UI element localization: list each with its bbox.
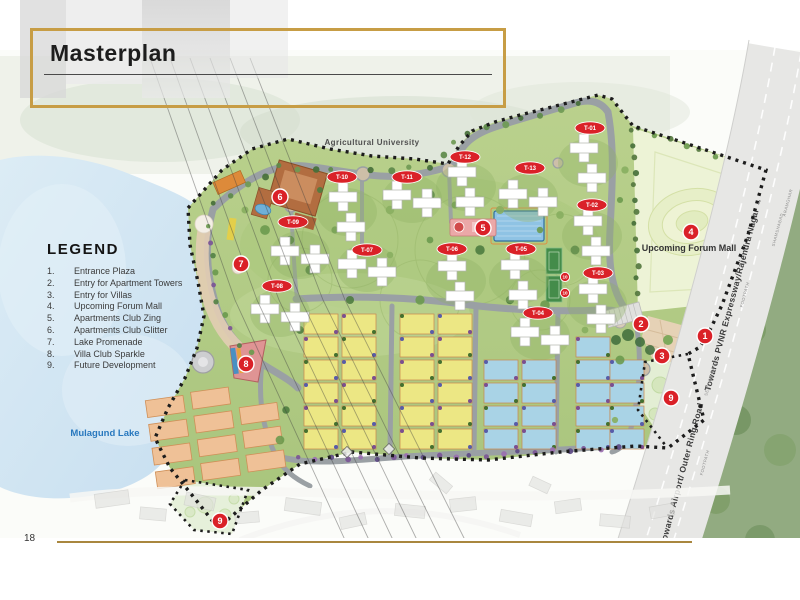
legend-item-label: Entry for Apartment Towers bbox=[74, 278, 182, 290]
tower-label-T-09: T-09 bbox=[278, 216, 308, 228]
svg-text:10: 10 bbox=[562, 291, 568, 296]
mulagund-lake-label: Mulagund Lake bbox=[70, 428, 139, 439]
svg-text:T-11: T-11 bbox=[401, 175, 413, 181]
map-marker-6: 6 bbox=[272, 189, 288, 205]
legend-item: 5.Apartments Club Zing bbox=[47, 313, 182, 325]
tower-label-T-08: T-08 bbox=[262, 280, 292, 292]
legend-item-label: Entrance Plaza bbox=[74, 266, 135, 278]
svg-text:T-08: T-08 bbox=[271, 284, 284, 290]
svg-text:T-07: T-07 bbox=[361, 248, 374, 254]
tower-label-T-03: T-03 bbox=[583, 267, 613, 279]
svg-text:1: 1 bbox=[702, 331, 707, 341]
map-marker-1: 1 bbox=[697, 328, 713, 344]
map-marker-9: 9 bbox=[212, 513, 228, 529]
legend: LEGEND 1.Entrance Plaza2.Entry for Apart… bbox=[47, 241, 182, 372]
map-marker-7: 7 bbox=[233, 256, 249, 272]
svg-text:T-06: T-06 bbox=[446, 247, 459, 253]
map-marker-3: 3 bbox=[654, 348, 670, 364]
svg-text:9: 9 bbox=[668, 393, 673, 403]
svg-text:4: 4 bbox=[688, 227, 693, 237]
legend-item-number: 6. bbox=[47, 325, 74, 337]
tower-label-T-10: T-10 bbox=[327, 171, 357, 183]
legend-item-label: Lake Promenade bbox=[74, 337, 143, 349]
page-number: 18 bbox=[24, 533, 35, 544]
legend-item-number: 2. bbox=[47, 278, 74, 290]
svg-text:T-09: T-09 bbox=[287, 220, 300, 226]
legend-item-number: 8. bbox=[47, 349, 74, 361]
svg-text:9: 9 bbox=[217, 516, 222, 526]
tower-label-T-02: T-02 bbox=[577, 199, 607, 211]
svg-text:T-12: T-12 bbox=[459, 155, 472, 161]
title-underline bbox=[44, 74, 492, 75]
forum-mall-label: Upcoming Forum Mall bbox=[642, 243, 737, 253]
map-marker-4: 4 bbox=[683, 224, 699, 240]
svg-text:T-03: T-03 bbox=[592, 271, 605, 277]
legend-heading: LEGEND bbox=[47, 241, 182, 258]
legend-item-number: 5. bbox=[47, 313, 74, 325]
legend-item-label: Future Development bbox=[74, 360, 156, 372]
tower-label-T-01: T-01 bbox=[575, 122, 605, 134]
svg-text:10: 10 bbox=[562, 275, 568, 280]
legend-item-number: 7. bbox=[47, 337, 74, 349]
legend-item: 6.Apartments Club Glitter bbox=[47, 325, 182, 337]
legend-item: 2.Entry for Apartment Towers bbox=[47, 278, 182, 290]
legend-item: 3.Entry for Villas bbox=[47, 290, 182, 302]
svg-text:6: 6 bbox=[277, 192, 282, 202]
svg-text:T-01: T-01 bbox=[584, 126, 597, 132]
bottom-fade bbox=[0, 538, 800, 600]
svg-text:T-13: T-13 bbox=[524, 166, 537, 172]
legend-item-number: 1. bbox=[47, 266, 74, 278]
legend-item: 9.Future Development bbox=[47, 360, 182, 372]
legend-item: 4.Upcoming Forum Mall bbox=[47, 301, 182, 313]
brochure-page: Towards PVNR Expressway/Rajendra Nagar →… bbox=[0, 0, 800, 600]
legend-item-label: Entry for Villas bbox=[74, 290, 132, 302]
svg-text:5: 5 bbox=[480, 223, 485, 233]
map-marker-9: 9 bbox=[663, 390, 679, 406]
agricultural-university-label: Agricultural University bbox=[324, 138, 419, 147]
svg-text:7: 7 bbox=[238, 259, 243, 269]
tower-label-T-05: T-05 bbox=[506, 243, 536, 255]
legend-item-number: 3. bbox=[47, 290, 74, 302]
svg-text:2: 2 bbox=[638, 319, 643, 329]
map-marker-2: 2 bbox=[633, 316, 649, 332]
legend-list: 1.Entrance Plaza2.Entry for Apartment To… bbox=[47, 266, 182, 372]
title-box: Masterplan bbox=[30, 28, 506, 108]
svg-text:T-10: T-10 bbox=[336, 175, 349, 181]
tower-label-T-13: T-13 bbox=[515, 162, 545, 174]
tower-label-T-12: T-12 bbox=[450, 151, 480, 163]
svg-text:3: 3 bbox=[659, 351, 664, 361]
tower-label-T-07: T-07 bbox=[352, 244, 382, 256]
svg-text:T-04: T-04 bbox=[532, 311, 545, 317]
map-marker-10: 10 bbox=[560, 272, 569, 281]
map-marker-5: 5 bbox=[475, 220, 491, 236]
svg-text:8: 8 bbox=[243, 359, 248, 369]
legend-item-label: Apartments Club Zing bbox=[74, 313, 161, 325]
legend-item-number: 4. bbox=[47, 301, 74, 313]
legend-item-number: 9. bbox=[47, 360, 74, 372]
map-marker-10: 10 bbox=[560, 288, 569, 297]
svg-text:T-02: T-02 bbox=[586, 203, 599, 209]
footer-rule bbox=[57, 541, 692, 543]
tower-building-T-13 bbox=[498, 174, 558, 222]
legend-item-label: Villa Club Sparkle bbox=[74, 349, 145, 361]
svg-text:T-05: T-05 bbox=[515, 247, 528, 253]
legend-item-label: Upcoming Forum Mall bbox=[74, 301, 162, 313]
tower-label-T-06: T-06 bbox=[437, 243, 467, 255]
tower-label-T-04: T-04 bbox=[523, 307, 553, 319]
legend-item: 1.Entrance Plaza bbox=[47, 266, 182, 278]
legend-item-label: Apartments Club Glitter bbox=[74, 325, 168, 337]
page-title: Masterplan bbox=[50, 40, 503, 67]
legend-item: 7.Lake Promenade bbox=[47, 337, 182, 349]
map-marker-8: 8 bbox=[238, 356, 254, 372]
tower-building-T-08 bbox=[250, 289, 310, 337]
tower-label-T-11: T-11 bbox=[392, 171, 422, 183]
legend-item: 8.Villa Club Sparkle bbox=[47, 349, 182, 361]
